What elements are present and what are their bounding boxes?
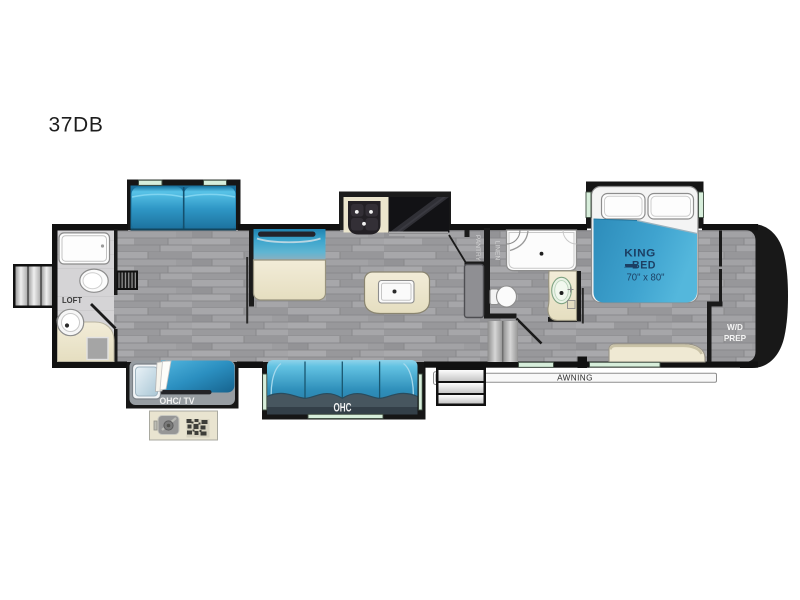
svg-text:AWNING: AWNING [557, 374, 593, 383]
svg-text:LINEN: LINEN [494, 241, 501, 261]
svg-text:LOFT: LOFT [62, 296, 82, 305]
svg-text:OHC/ TV: OHC/ TV [160, 396, 196, 407]
svg-text:PANTRY: PANTRY [474, 235, 481, 262]
svg-text:37DB: 37DB [49, 114, 104, 137]
svg-text:OHC: OHC [334, 401, 352, 415]
svg-text:KING: KING [624, 248, 656, 260]
svg-text:PREP: PREP [724, 334, 747, 343]
svg-text:W/D: W/D [727, 323, 743, 332]
svg-text:70" x 80": 70" x 80" [627, 273, 665, 284]
